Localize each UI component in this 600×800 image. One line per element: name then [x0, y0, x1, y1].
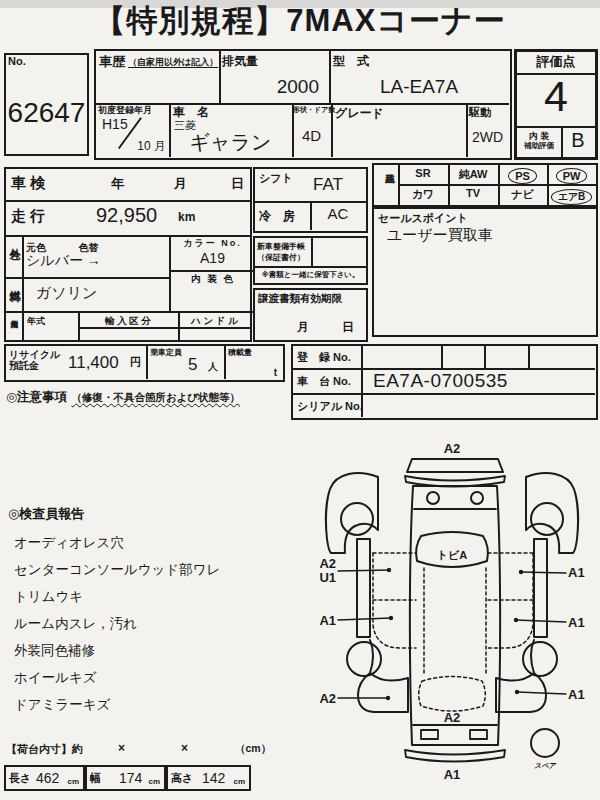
interior-rating-score: B [561, 129, 595, 152]
option-leather: カワ [398, 187, 448, 202]
shaken-row: 車検 年 月 日 [6, 169, 250, 202]
length-box: 長さ 462 cm [4, 765, 85, 791]
service-book-label-cell: 新車整備手帳 （保証書付） [255, 238, 313, 268]
interior-rating-row: 内 装 補助評価 B [517, 126, 595, 157]
sales-point-value: ユーザー買取車 [387, 226, 493, 245]
diagram-left-rear-label: A2 [319, 691, 336, 706]
registration-box: 登 録 No. 車 台 No. EA7A-0700535 シリアル No. [291, 344, 598, 420]
transfer-label: 譲渡書類有効期限 [258, 292, 342, 306]
model-code-cell: 型 式 LA-EA7A [329, 51, 509, 105]
diagram-spare-label: スペア [534, 762, 556, 769]
auction-sheet: { "title": "【特別規程】7MAXコーナー", "lot": { "l… [0, 0, 600, 800]
shaken-label: 車検 [11, 174, 49, 193]
diagram-windshield-label: トビA [437, 549, 468, 561]
rating-box: 評価点 4 内 装 補助評価 B [514, 49, 598, 160]
option-ps: PS [498, 166, 547, 184]
shape-label: 形状・ドア数 [293, 105, 335, 115]
recycle-unit: 円 [130, 355, 141, 370]
history-label: 車歴 [99, 53, 125, 71]
ac-row: 冷 房 AC [255, 201, 366, 230]
width-value: 174 [119, 770, 142, 786]
color-no-label: カラー No. [173, 237, 252, 250]
shape-value: 4D [292, 127, 331, 144]
width-box: 幅 174 cm [85, 765, 166, 791]
recycle-label: リサイクル 預託金 [9, 349, 60, 371]
inspector-report-label: ◎検査員報告 [8, 505, 84, 523]
shaken-day: 日 [231, 175, 244, 193]
interior-rating-label-2: 補助評価 [517, 141, 561, 151]
width-unit: cm [148, 777, 160, 786]
fuel-value: ガソリン [36, 284, 97, 303]
color-no-value: A19 [173, 250, 252, 266]
transfer-box: 譲渡書類有効期限 月 日 [253, 288, 368, 342]
displacement-value: 2000 [277, 76, 319, 98]
height-label: 高さ [171, 771, 193, 786]
mileage-row: 走行 92,950 km [6, 200, 250, 237]
shift-ac-box: シフト FAT 冷 房 AC [253, 167, 368, 233]
times-2: × [181, 741, 188, 755]
option-aw: 純AW [448, 167, 498, 182]
service-book-box: 新車整備手帳 （保証書付） ※書類と一緒に保管下さい。 [253, 236, 368, 285]
lot-number-value: 62647 [6, 97, 87, 129]
interior-rating-label-cell: 内 装 補助評価 [517, 128, 563, 157]
option-airbag: エアB [547, 186, 596, 205]
option-sr: SR [398, 167, 448, 179]
height-unit: cm [233, 777, 245, 786]
option-navi: ナビ [498, 187, 547, 202]
caution-note: （修復・不具合箇所および状態等） [71, 391, 240, 403]
mileage-unit: km [178, 210, 195, 224]
name-cell: 車 名 三菱 ギャラン [169, 103, 294, 157]
option-pw: PW [547, 166, 596, 184]
transfer-day: 日 [342, 319, 354, 336]
shape-cell: 形状・ドア数 4D [292, 103, 333, 157]
shift-value: FAT [313, 175, 343, 195]
caution-label: ◎注意事項 [6, 390, 67, 404]
lot-number-box: No. 62647 [4, 53, 89, 156]
displacement-cell: 排気量 2000 [219, 51, 331, 105]
drive-label: 駆動 [469, 105, 491, 120]
chassis-no-value: EA7A-0700535 [373, 370, 508, 392]
cm-note: （cm） [235, 742, 271, 756]
grade-label: グレード [335, 105, 384, 122]
interior-rating-label-1: 内 装 [517, 131, 561, 141]
drive-cell: 駆動 2WD [466, 103, 509, 157]
lot-number-label: No. [8, 55, 26, 67]
inspector-item: トリムウキ [14, 588, 83, 606]
height-box: 高さ 142 cm [166, 765, 251, 791]
vehicle-detail-box: 車検 年 月 日 走行 92,950 km 外色 元色 色替 シルバー → カラ… [4, 167, 252, 342]
rating-score: 4 [517, 72, 595, 121]
grade-cell: グレード [331, 103, 468, 157]
option-tv: TV [448, 187, 498, 199]
ext-color-label: 外色 [6, 239, 22, 241]
interior-color-label: 内 装 色 [176, 273, 250, 286]
times-1: × [118, 741, 125, 755]
displacement-label: 排気量 [222, 53, 258, 70]
ac-value: AC [310, 205, 366, 222]
model-code-label: 型 式 [333, 53, 369, 70]
first-reg-cell: 初度登録年月 H15 10 月 [96, 103, 171, 157]
inspector-item: ホイールキズ [14, 669, 97, 687]
color-value: シルバー → [26, 252, 101, 270]
service-book-label-2: （保証書付） [257, 252, 311, 263]
diagram-rear-label: A1 [444, 767, 461, 782]
inspector-item: ルーム内スレ，汚れ [14, 615, 137, 633]
shaken-month: 月 [174, 175, 187, 193]
diagram-right-mid-label: A1 [568, 615, 585, 630]
recycle-box: リサイクル 預託金 11,400 円 乗車定員 5 人 積載量 t [4, 344, 285, 382]
diagram-right-front-label: A1 [568, 565, 585, 580]
chassis-no-label: 車 台 No. [297, 374, 351, 389]
drive-value: 2WD [466, 129, 509, 145]
serial-no-label: シリアル No. [297, 399, 363, 414]
capacity-unit: 人 [208, 360, 218, 374]
diagram-left-mid-label: A1 [319, 613, 336, 628]
history-cell: 車歴 （自家用以外は記入） [96, 51, 221, 105]
color-no-cell: カラー No. A19 [173, 237, 252, 266]
inspector-item: センターコンソールウッド部ワレ [14, 561, 220, 579]
load-unit: t [274, 367, 277, 378]
caution-heading: ◎注意事項 （修復・不具合箇所および状態等） [6, 387, 240, 406]
options-box: 純正品 SR 純AW PS PW カワ TV ナビ エアB [372, 163, 598, 207]
ac-label: 冷 房 [259, 208, 295, 225]
vehicle-header-box: 車歴 （自家用以外は記入） 排気量 2000 型 式 LA-EA7A 初度登録年… [94, 49, 512, 160]
capacity-label: 乗車定員 [150, 347, 182, 358]
diagram-front-label: A2 [444, 441, 461, 456]
reg-no-label: 登 録 No. [297, 350, 351, 365]
load-label: 積載量 [228, 347, 252, 358]
inspector-item: オーディオレス穴 [14, 534, 124, 552]
length-unit: cm [67, 777, 79, 786]
model-code-value: LA-EA7A [329, 76, 509, 98]
transfer-month: 月 [297, 319, 309, 336]
model-value: ギャラン [169, 129, 292, 156]
mileage-label: 走行 [11, 207, 49, 226]
cargo-dims-label: 【荷台内寸】約 [6, 742, 83, 757]
diagram-left-front-label-b: U1 [319, 570, 336, 585]
car-damage-diagram: A2 トビA A2 U1 A1 A1 A1 A2 A1 A2 A1 スペア [300, 435, 600, 795]
sales-point-box: セールスポイント ユーザー買取車 [372, 207, 598, 337]
diagram-rear-glass-label: A2 [444, 710, 461, 725]
fuel-label: 燃料 [6, 281, 22, 283]
height-value: 142 [202, 770, 225, 786]
import-year-label: 年式 [27, 315, 45, 328]
length-value: 462 [36, 770, 59, 786]
diagram-right-rear-label: A1 [568, 687, 585, 702]
shaken-year: 年 [111, 175, 124, 193]
diagram-left-front-label-a: A2 [319, 556, 336, 571]
mileage-value: 92,950 [96, 204, 157, 227]
shift-row: シフト FAT [255, 169, 366, 203]
page-title: 【特別規程】7MAXコーナー [0, 0, 600, 42]
inspector-item: 外装同色補修 [14, 642, 95, 660]
history-note: （自家用以外は記入） [128, 56, 218, 69]
shift-label: シフト [259, 171, 293, 186]
capacity-value: 5 [188, 355, 197, 375]
sales-point-label: セールスポイント [378, 211, 468, 226]
length-label: 長さ [9, 771, 31, 786]
inspector-item: ドアミラーキズ [14, 696, 110, 714]
first-reg-month: 10 月 [137, 138, 166, 155]
service-book-label-1: 新車整備手帳 [257, 241, 311, 252]
keep-note: ※書類と一緒に保管下さい。 [255, 266, 366, 283]
first-reg-year: H15 [102, 116, 128, 132]
width-label: 幅 [90, 771, 101, 786]
recycle-value: 11,400 [68, 353, 119, 373]
